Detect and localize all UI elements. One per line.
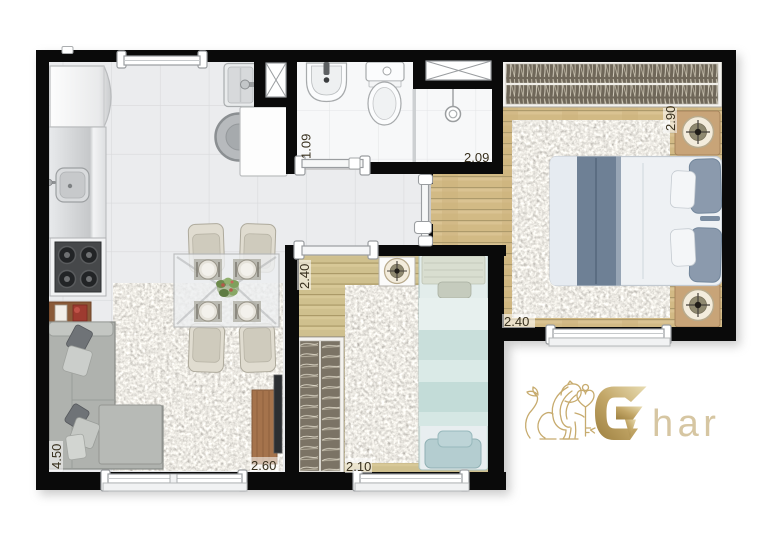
svg-text:2.40: 2.40 bbox=[297, 264, 312, 289]
svg-text:2.10: 2.10 bbox=[346, 459, 371, 474]
svg-text:har: har bbox=[652, 403, 720, 445]
svg-text:2.40: 2.40 bbox=[504, 314, 529, 329]
svg-text:4.50: 4.50 bbox=[49, 444, 64, 469]
svg-text:2.90: 2.90 bbox=[663, 106, 678, 131]
svg-text:2.09: 2.09 bbox=[464, 150, 489, 165]
svg-text:2.60: 2.60 bbox=[251, 458, 276, 473]
svg-text:1.09: 1.09 bbox=[299, 134, 314, 159]
